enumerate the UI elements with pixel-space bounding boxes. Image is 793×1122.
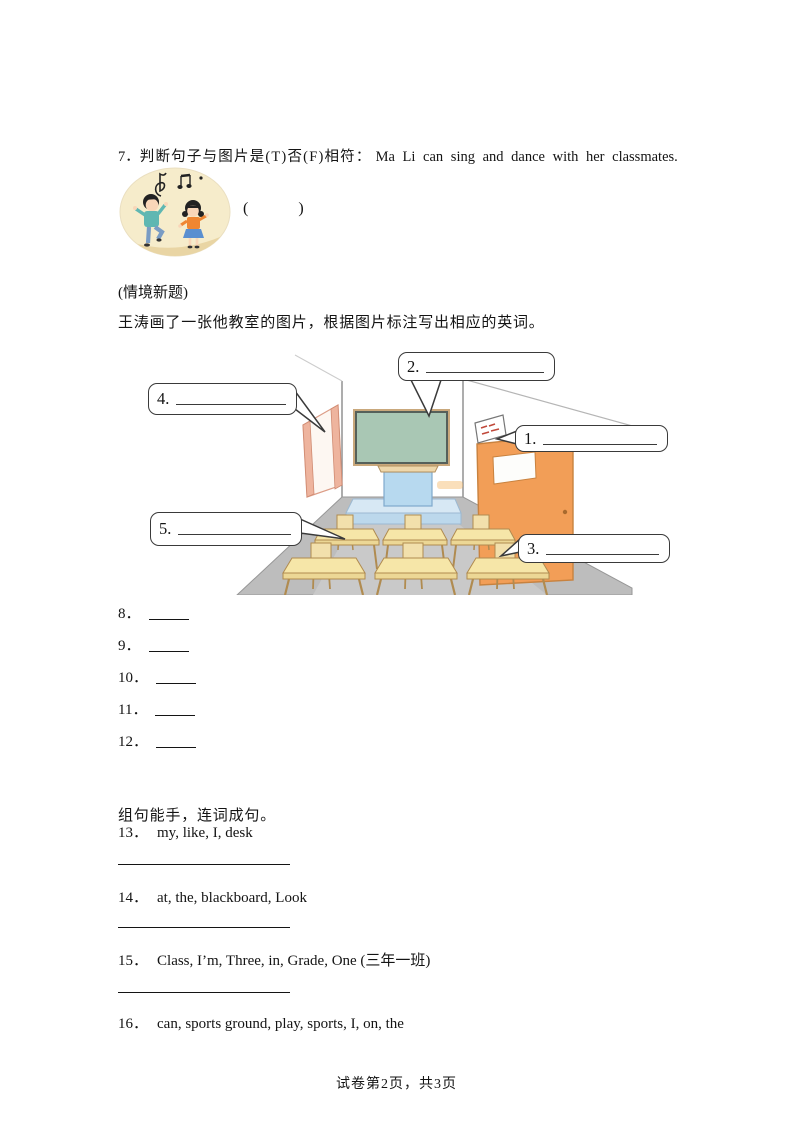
fill-item-8-number: 8． (118, 606, 141, 622)
fill-item-12-blank (156, 733, 196, 748)
word-order-item-14: 14．at, the, blackboard, Look (118, 886, 307, 907)
question-7-sentence: Ma Li can sing and dance with her classm… (376, 149, 678, 165)
fill-item-8-blank (149, 605, 189, 620)
fill-item-12-number: 12． (118, 734, 148, 750)
question-7-number: 7． (118, 149, 140, 165)
item-16-words: can, sports ground, play, sports, I, on,… (157, 1016, 404, 1032)
fill-item-12: 12． (118, 730, 196, 751)
word-order-item-15: 15．Class, I’m, Three, in, Grade, One (三年… (118, 949, 430, 970)
bubble-2-blank (426, 358, 544, 373)
fill-item-11: 11． (118, 698, 195, 719)
label-bubble-2: 2. (398, 352, 555, 381)
bubble-1-number: 1. (524, 429, 536, 449)
item-15-answer-line (118, 978, 290, 993)
question-7-picture (119, 167, 231, 257)
bubble-1-blank (543, 430, 657, 445)
bubble-5-blank (178, 520, 291, 535)
fill-item-11-number: 11． (118, 702, 147, 718)
item-16-number: 16． (118, 1016, 148, 1032)
podium (378, 466, 438, 506)
fill-item-10: 10． (118, 666, 196, 687)
fill-item-11-blank (155, 701, 195, 716)
fill-item-9-blank (149, 637, 189, 652)
label-bubble-4: 4. (148, 383, 297, 415)
fill-item-8: 8． (118, 602, 189, 623)
bubble-4-number: 4. (157, 389, 169, 409)
item-15-number: 15． (118, 953, 148, 969)
context-note: (情境新题) (118, 281, 188, 302)
bubble-3-number: 3. (527, 539, 539, 559)
bubble-3-blank (546, 540, 659, 555)
page-footer: 试卷第2页，共3页 (0, 1073, 793, 1093)
kids-dancing-illustration (119, 167, 231, 257)
fill-item-9-number: 9． (118, 638, 141, 654)
word-order-item-16: 16．can, sports ground, play, sports, I, … (118, 1012, 404, 1033)
blackboard (354, 410, 449, 465)
bubble-4-blank (176, 390, 286, 405)
word-order-item-13: 13．my, like, I, desk (118, 821, 253, 842)
label-bubble-5: 5. (150, 512, 302, 546)
item-15-words: Class, I’m, Three, in, Grade, One (三年一班) (157, 953, 430, 969)
item-13-number: 13． (118, 825, 148, 841)
bubble-5-number: 5. (159, 519, 171, 539)
classroom-illustration: 1. 2. 3. 4. 5. (145, 345, 685, 595)
question-7-answer-blank: ( ) (243, 200, 306, 218)
fill-item-9: 9． (118, 634, 189, 655)
labeling-instruction: 王涛画了一张他教室的图片，根据图片标注写出相应的英词。 (118, 311, 545, 332)
fill-item-10-number: 10． (118, 670, 148, 686)
question-7-prompt: 判断句子与图片是(T)否(F)相符： (140, 149, 372, 165)
item-14-answer-line (118, 913, 290, 928)
item-13-answer-line (118, 850, 290, 865)
exam-page: 7．判断句子与图片是(T)否(F)相符：Ma Li can sing and d… (0, 0, 793, 1122)
item-13-words: my, like, I, desk (157, 825, 253, 841)
question-7: 7．判断句子与图片是(T)否(F)相符：Ma Li can sing and d… (118, 148, 684, 168)
item-14-number: 14． (118, 890, 148, 906)
fill-item-10-blank (156, 669, 196, 684)
bubble-2-number: 2. (407, 357, 419, 377)
label-bubble-1: 1. (515, 425, 668, 452)
label-bubble-3: 3. (518, 534, 670, 563)
item-14-words: at, the, blackboard, Look (157, 890, 307, 906)
